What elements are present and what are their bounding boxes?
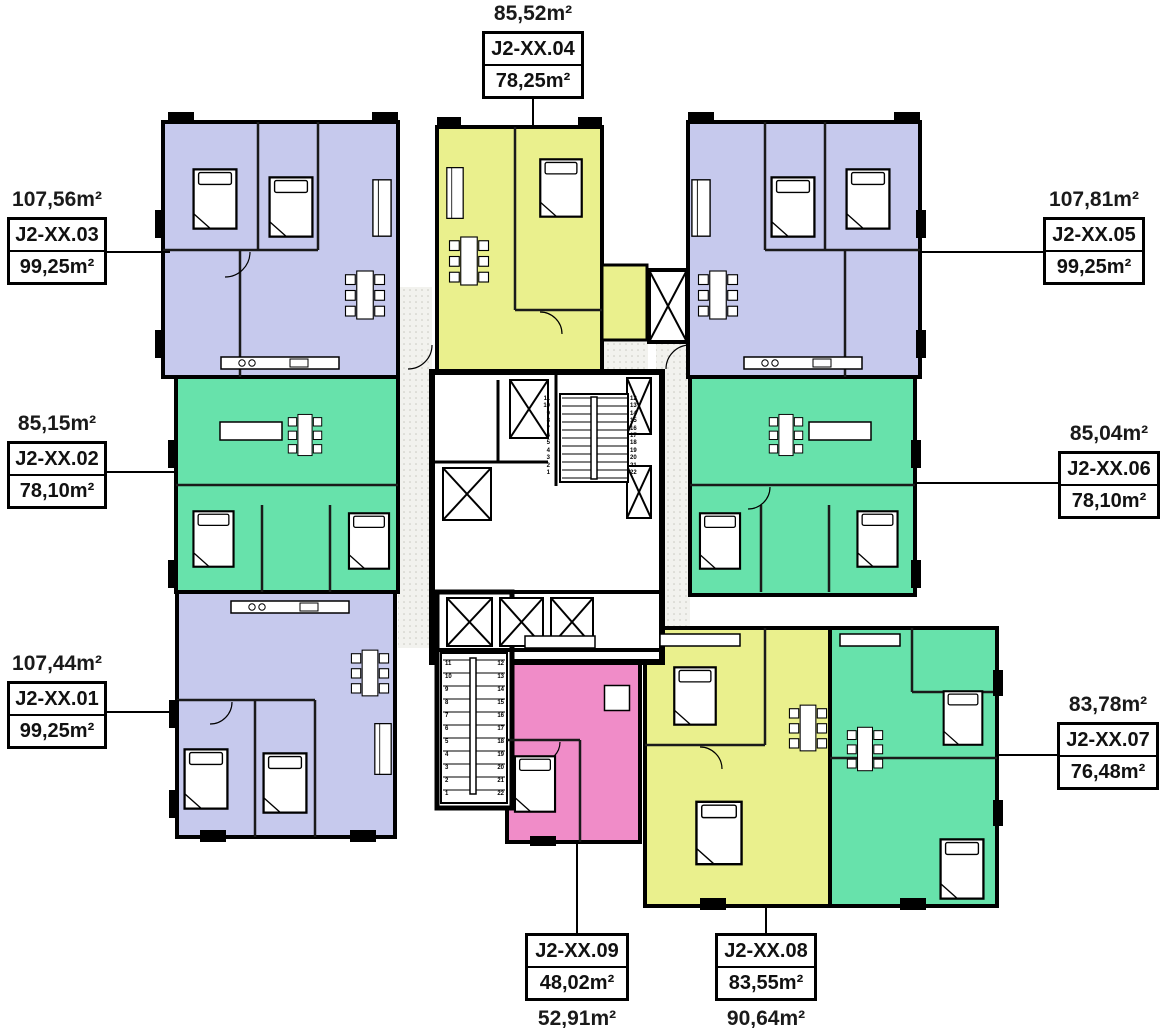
unit-total-area: 90,64m² bbox=[715, 1007, 817, 1028]
dining-table-icon bbox=[351, 650, 388, 696]
bed-icon bbox=[772, 177, 815, 236]
unit-name: J2-XX.02 bbox=[10, 444, 104, 474]
unit-label-j2-xx-06: 85,04m² J2-XX.06 78,10m² bbox=[1058, 422, 1160, 519]
sofa-icon bbox=[220, 422, 282, 440]
unit-total-area: 85,15m² bbox=[7, 412, 107, 436]
bed-icon bbox=[700, 513, 740, 568]
bed-icon bbox=[941, 839, 984, 898]
stair-numbers: 11 10 9 8 7 6 5 4 3 2 1 bbox=[445, 658, 459, 801]
bed-icon bbox=[194, 169, 237, 228]
unit-name: J2-XX.08 bbox=[718, 936, 814, 966]
dining-table-icon bbox=[699, 271, 738, 319]
sofa-icon bbox=[447, 168, 463, 219]
unit-name: J2-XX.04 bbox=[485, 34, 581, 64]
kitchen-counter-icon bbox=[221, 357, 339, 369]
unit-total-area: 107,44m² bbox=[7, 652, 107, 676]
unit-label-j2-xx-03: 107,56m² J2-XX.03 99,25m² bbox=[7, 188, 107, 285]
kitchen-counter-icon bbox=[744, 357, 862, 369]
sofa-icon bbox=[373, 180, 391, 236]
unit-name: J2-XX.03 bbox=[10, 220, 104, 250]
floor-plan-page: 11 10 9 8 7 6 5 4 3 2 1 12 13 14 15 16 1… bbox=[0, 0, 1172, 1028]
elevator-icon bbox=[649, 270, 687, 342]
unit-label-j2-xx-07: 83,78m² J2-XX.07 76,48m² bbox=[1057, 693, 1159, 790]
bed-icon bbox=[857, 511, 897, 566]
unit-inner-area: 48,02m² bbox=[528, 966, 626, 998]
bed-icon bbox=[847, 169, 890, 228]
unit-total-area: 85,52m² bbox=[482, 2, 584, 26]
unit-label-box: J2-XX.03 99,25m² bbox=[7, 217, 107, 285]
unit-name: J2-XX.01 bbox=[10, 684, 104, 714]
sofa-icon bbox=[692, 180, 710, 236]
table-icon bbox=[605, 686, 630, 711]
stair-upper bbox=[560, 394, 628, 482]
unit-label-box: J2-XX.04 78,25m² bbox=[482, 31, 584, 99]
unit-inner-area: 99,25m² bbox=[1046, 250, 1142, 282]
corridor-left bbox=[398, 287, 432, 592]
unit-inner-area: 78,25m² bbox=[485, 64, 581, 96]
unit-name: J2-XX.07 bbox=[1060, 725, 1156, 755]
unit-label-j2-xx-02: 85,15m² J2-XX.02 78,10m² bbox=[7, 412, 107, 509]
unit-label-box: J2-XX.07 76,48m² bbox=[1057, 722, 1159, 790]
unit-name: J2-XX.06 bbox=[1061, 454, 1157, 484]
dining-table-icon bbox=[346, 271, 385, 319]
dining-table-icon bbox=[288, 414, 321, 455]
bed-icon bbox=[944, 691, 983, 745]
stair-numbers: 12 13 14 15 16 17 18 19 20 21 22 bbox=[630, 396, 646, 477]
kitchen-counter-icon bbox=[660, 634, 740, 646]
bed-icon bbox=[349, 513, 389, 568]
elevator-icon bbox=[447, 598, 492, 646]
unit-label-j2-xx-08: J2-XX.08 83,55m² 90,64m² bbox=[715, 933, 817, 1028]
sofa-icon bbox=[375, 724, 391, 775]
bed-icon bbox=[185, 749, 228, 808]
unit-label-j2-xx-09: J2-XX.09 48,02m² 52,91m² bbox=[525, 933, 629, 1028]
unit-inner-area: 99,25m² bbox=[10, 250, 104, 282]
unit-label-box: J2-XX.08 83,55m² bbox=[715, 933, 817, 1001]
dining-table-icon bbox=[450, 237, 489, 285]
unit-inner-area: 83,55m² bbox=[718, 966, 814, 998]
unit-total-area: 52,91m² bbox=[525, 1007, 629, 1028]
unit-label-j2-xx-04: 85,52m² J2-XX.04 78,25m² bbox=[482, 2, 584, 99]
unit-name: J2-XX.09 bbox=[528, 936, 626, 966]
unit-total-area: 85,04m² bbox=[1058, 422, 1160, 446]
unit-label-box: J2-XX.09 48,02m² bbox=[525, 933, 629, 1001]
unit-inner-area: 78,10m² bbox=[1061, 484, 1157, 516]
unit-inner-area: 78,10m² bbox=[10, 474, 104, 506]
unit-inner-area: 99,25m² bbox=[10, 714, 104, 746]
kitchen-counter-icon bbox=[840, 634, 900, 646]
unit-total-area: 83,78m² bbox=[1057, 693, 1159, 717]
unit-total-area: 107,56m² bbox=[7, 188, 107, 212]
kitchen-counter-icon bbox=[525, 636, 595, 648]
unit-label-j2-xx-01: 107,44m² J2-XX.01 99,25m² bbox=[7, 652, 107, 749]
kitchen-counter-icon bbox=[231, 601, 349, 613]
elevator-icon bbox=[443, 468, 491, 520]
bed-icon bbox=[264, 753, 307, 812]
unit-name: J2-XX.05 bbox=[1046, 220, 1142, 250]
unit-label-box: J2-XX.02 78,10m² bbox=[7, 441, 107, 509]
unit-label-box: J2-XX.05 99,25m² bbox=[1043, 217, 1145, 285]
unit-label-j2-xx-05: 107,81m² J2-XX.05 99,25m² bbox=[1043, 188, 1145, 285]
bed-icon bbox=[270, 177, 313, 236]
unit-label-box: J2-XX.01 99,25m² bbox=[7, 681, 107, 749]
dining-table-icon bbox=[769, 414, 802, 455]
unit-label-box: J2-XX.06 78,10m² bbox=[1058, 451, 1160, 519]
stair-numbers: 11 10 9 8 7 6 5 4 3 2 1 bbox=[534, 396, 550, 477]
bed-icon bbox=[540, 159, 581, 216]
unit-j2-xx-04-ext bbox=[602, 265, 647, 340]
stair-numbers: 12 13 14 15 16 17 18 19 20 21 22 bbox=[490, 658, 504, 801]
dining-table-icon bbox=[847, 727, 882, 770]
dining-table-icon bbox=[789, 705, 826, 751]
bed-icon bbox=[193, 511, 233, 566]
bed-icon bbox=[696, 802, 741, 864]
unit-total-area: 107,81m² bbox=[1043, 188, 1145, 212]
bed-icon bbox=[515, 756, 555, 811]
unit-inner-area: 76,48m² bbox=[1060, 755, 1156, 787]
bed-icon bbox=[674, 667, 715, 724]
floor-plan-drawing bbox=[0, 0, 1172, 1028]
sofa-icon bbox=[809, 422, 871, 440]
